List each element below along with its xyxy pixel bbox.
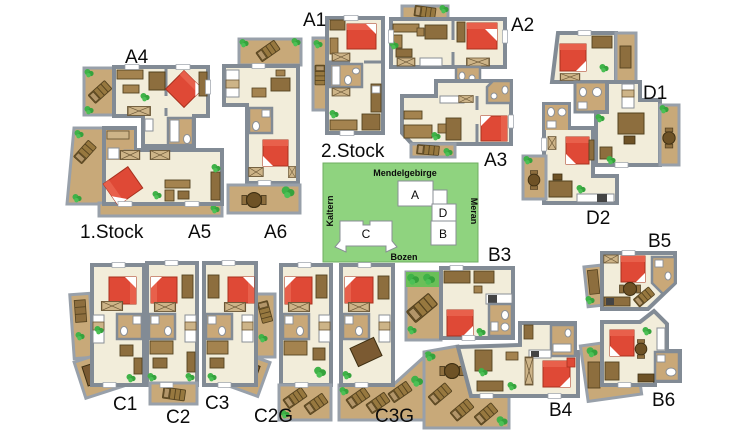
svg-text:Meran: Meran: [469, 198, 479, 225]
svg-text:B3: B3: [488, 245, 511, 266]
svg-text:C3: C3: [205, 393, 229, 414]
svg-text:Kaltern: Kaltern: [325, 195, 335, 226]
svg-text:B6: B6: [652, 390, 675, 411]
svg-text:A4: A4: [125, 47, 149, 68]
svg-text:C3G: C3G: [375, 406, 414, 427]
svg-text:C: C: [362, 227, 371, 241]
svg-text:2.Stock: 2.Stock: [321, 141, 385, 162]
svg-text:A2: A2: [511, 15, 534, 36]
svg-text:A5: A5: [188, 222, 211, 243]
svg-text:B: B: [439, 227, 447, 241]
svg-text:Mendelgebirge: Mendelgebirge: [373, 168, 437, 178]
svg-text:C2: C2: [166, 407, 190, 428]
svg-text:D2: D2: [586, 208, 610, 229]
svg-text:Bozen: Bozen: [391, 252, 418, 262]
svg-text:B4: B4: [549, 400, 573, 421]
svg-text:D1: D1: [643, 83, 667, 104]
svg-text:A6: A6: [264, 222, 287, 243]
svg-text:C1: C1: [113, 394, 137, 415]
svg-text:1.Stock: 1.Stock: [80, 222, 144, 243]
svg-text:A3: A3: [484, 150, 507, 171]
svg-text:A: A: [411, 188, 419, 202]
svg-text:A1: A1: [303, 10, 326, 31]
svg-text:B5: B5: [648, 231, 671, 252]
svg-text:D: D: [439, 206, 448, 220]
svg-text:C2G: C2G: [254, 406, 293, 427]
